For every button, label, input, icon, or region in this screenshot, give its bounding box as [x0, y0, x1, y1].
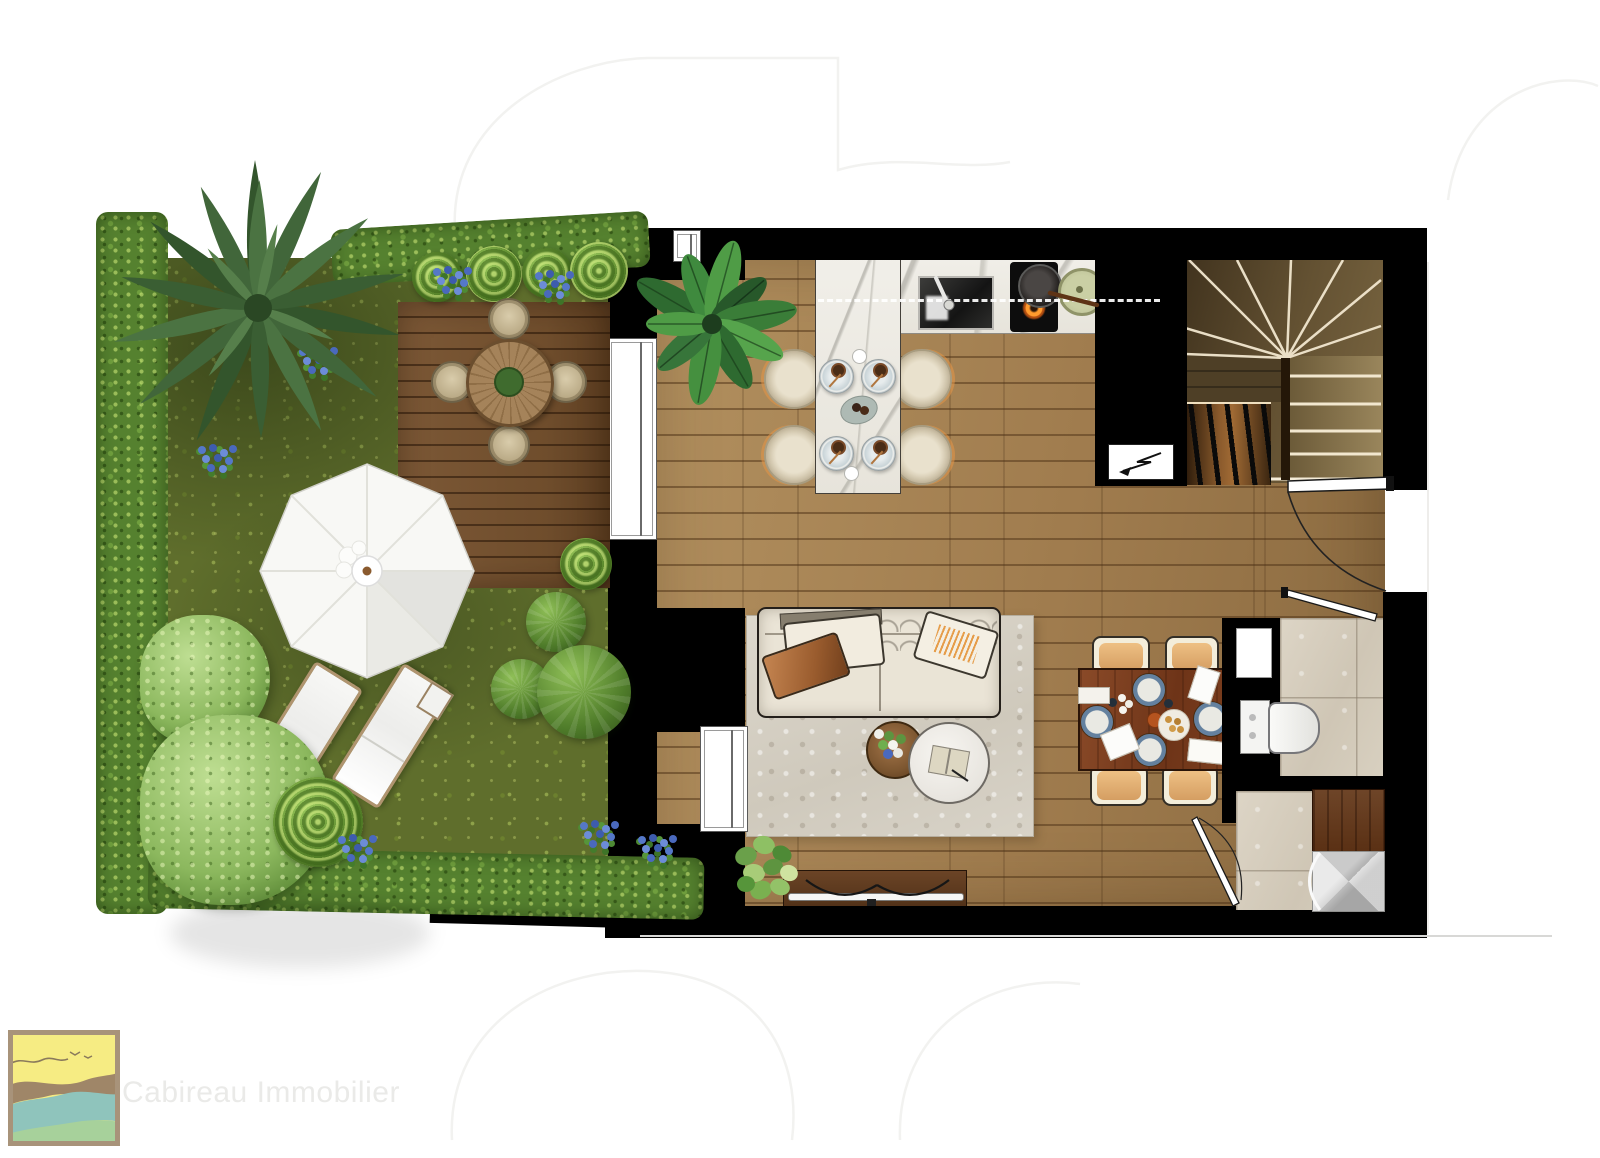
tv-detail-lines [806, 880, 949, 895]
pen [952, 770, 968, 781]
entrance-door-swing-arc [1288, 492, 1386, 591]
agency-logo [8, 1030, 120, 1146]
shower-door-swing-arc [1199, 818, 1242, 900]
pan-handle [1050, 293, 1097, 305]
floor-plan-canvas: Cabireau Immobilier [0, 0, 1600, 1158]
wc-door-leaf [1286, 590, 1377, 621]
brand-watermark: Cabireau Immobilier [122, 1076, 400, 1110]
sink-faucet [936, 278, 947, 302]
shower-glass-panel [1310, 853, 1321, 910]
entrance-door-leaf [1288, 477, 1390, 492]
plan-linework [0, 0, 1600, 1158]
shower-door-leaf [1192, 817, 1239, 906]
